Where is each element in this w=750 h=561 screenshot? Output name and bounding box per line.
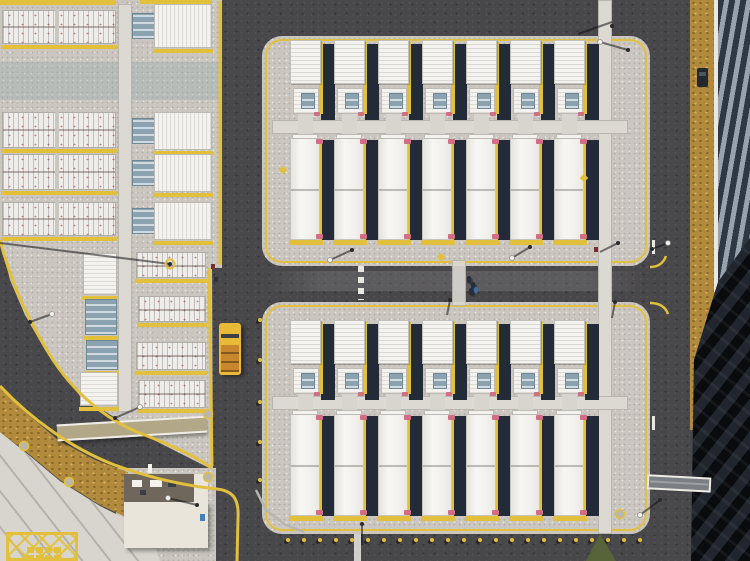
manhole-cover xyxy=(20,442,29,451)
lamp-head xyxy=(510,256,515,261)
manhole-cover xyxy=(204,473,213,482)
small-sign xyxy=(214,277,218,282)
pole-shadow xyxy=(0,243,170,264)
pole-base xyxy=(448,298,452,302)
pole-base xyxy=(168,262,172,266)
pavement-marker xyxy=(437,253,445,261)
pavement-marker xyxy=(580,174,588,182)
aerial-photo-bess-facility xyxy=(0,0,750,561)
lamp-head xyxy=(666,241,671,246)
pedestrian-bridge xyxy=(648,475,711,491)
pole-shadow xyxy=(30,314,52,322)
pole-base xyxy=(616,241,620,245)
left-pad-curb-diagonal xyxy=(0,240,212,468)
left-pad-curb-right-lower xyxy=(209,268,212,466)
outer-road-curb xyxy=(0,386,238,561)
pole-base xyxy=(613,300,617,304)
pole-base xyxy=(650,247,654,251)
pole-base xyxy=(350,248,354,252)
manhole-cover xyxy=(204,410,213,419)
lamp-head xyxy=(328,258,333,263)
pole-shadow xyxy=(640,500,660,515)
lamp-head xyxy=(138,405,143,410)
pole-shadow xyxy=(447,300,450,315)
lamp-head xyxy=(598,40,603,45)
pole-base xyxy=(626,48,630,52)
pole-shadow xyxy=(600,243,618,252)
pole-shadow xyxy=(578,22,612,34)
junction-curb-a xyxy=(650,256,666,267)
small-sign xyxy=(211,264,215,269)
pole-base xyxy=(610,24,614,28)
lamp-head xyxy=(166,496,171,501)
poles-and-markers xyxy=(0,22,671,545)
guardrail xyxy=(256,490,304,532)
manhole-cover xyxy=(65,478,74,487)
pole-shadow xyxy=(600,42,628,50)
pole-shadow xyxy=(115,407,140,418)
junction-curb-b xyxy=(650,303,668,314)
pole-base xyxy=(528,245,532,249)
pole-base xyxy=(195,503,199,507)
line-overlay xyxy=(0,0,750,561)
lamp-head xyxy=(638,513,643,518)
pole-shadow xyxy=(512,247,530,258)
pole-base xyxy=(360,522,364,526)
pole-shadow xyxy=(612,302,615,318)
pole-base xyxy=(658,498,662,502)
small-sign xyxy=(594,247,598,252)
pole-base xyxy=(28,320,32,324)
pole-shadow xyxy=(168,498,197,505)
pavement-marker xyxy=(279,166,287,174)
manhole-cover xyxy=(616,510,625,519)
pole-base xyxy=(113,416,117,420)
pole-shadow xyxy=(330,250,352,260)
lamp-head xyxy=(50,312,55,317)
